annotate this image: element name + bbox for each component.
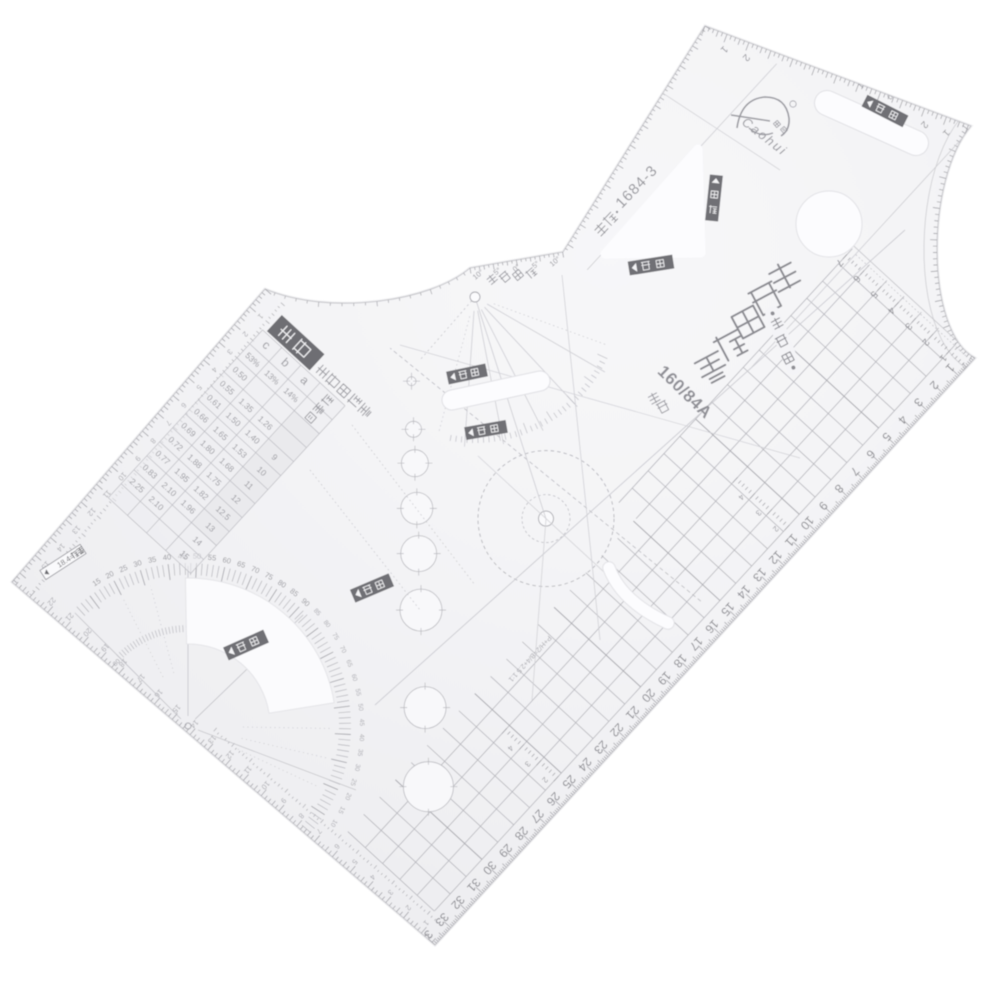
svg-text:50: 50 xyxy=(356,703,364,711)
svg-text:45: 45 xyxy=(358,719,365,727)
svg-text:35: 35 xyxy=(356,749,364,758)
svg-text:40: 40 xyxy=(358,734,365,742)
